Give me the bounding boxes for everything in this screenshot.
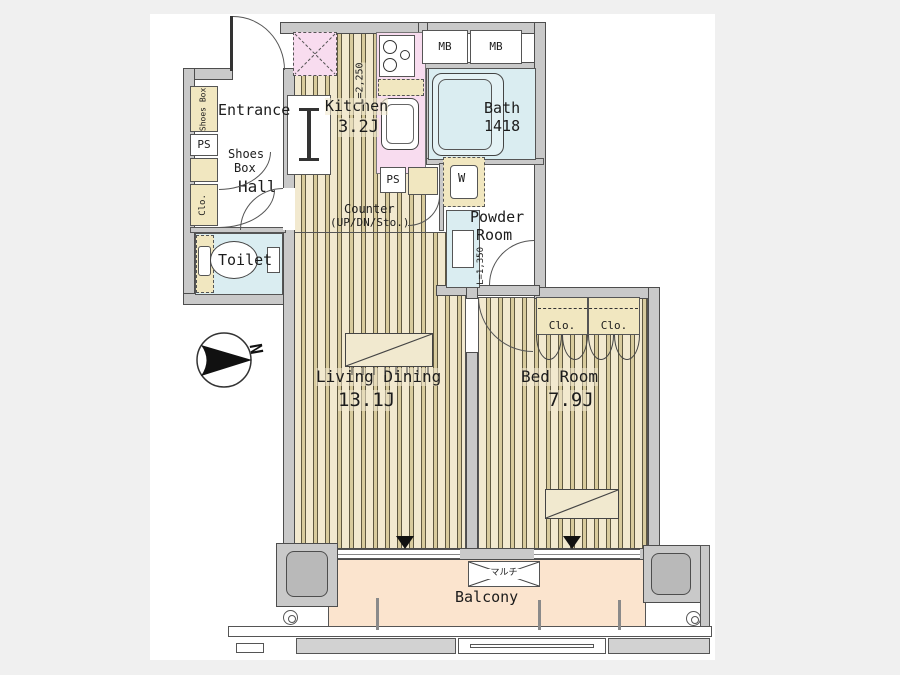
- bath-size: 1418: [484, 118, 520, 135]
- stove-burner-3: [400, 50, 410, 60]
- balcony-label: Balcony: [455, 589, 518, 606]
- powder-room-label-line1: Powder: [470, 209, 524, 226]
- bedroom-window: [534, 549, 640, 559]
- entrance-label: Entrance: [218, 102, 290, 119]
- balcony-railing-slat: [470, 644, 594, 648]
- bath-label: Bath: [484, 100, 520, 117]
- pipe-space-counter: PS: [380, 167, 406, 193]
- meter-box-1: MB: [422, 30, 468, 64]
- hall-door-opening: [283, 188, 295, 230]
- hall-closet: Clo.: [190, 184, 218, 226]
- pipe-space-entrance-label: PS: [197, 139, 210, 151]
- balcony-right-wall: [700, 545, 710, 627]
- shoes-box-tall-label: Shoes Box: [200, 87, 209, 130]
- closet-dashed-line: [538, 308, 638, 309]
- living-window-marker: [396, 536, 414, 549]
- meter-box-2: MB: [470, 30, 522, 64]
- refrigerator-space: [293, 32, 337, 76]
- kitchen-counter-length: L=2,250: [352, 42, 368, 124]
- balcony-railing-band: [228, 626, 712, 637]
- bed-room-size: 7.9J: [548, 390, 594, 411]
- balcony-railing-slat-panel-left: [236, 643, 264, 653]
- wall-bedroom-right: [648, 287, 660, 560]
- counter-note-line1: Counter: [344, 203, 395, 216]
- shoes-box-small: [190, 158, 218, 182]
- washing-machine-label: W: [458, 172, 465, 185]
- wall-ld-bedroom-divider: [466, 352, 478, 558]
- bedroom-door-opening: [466, 299, 478, 352]
- balcony-railing-block-right: [608, 638, 710, 654]
- balcony-drain-right: [686, 611, 701, 626]
- bedroom-closet-2-label: Clo.: [601, 320, 628, 332]
- counter-storage: [408, 167, 438, 195]
- hall-closet-label: Clo.: [199, 194, 209, 216]
- kitchen-sink-basin: [386, 104, 414, 144]
- powder-vanity-length: L=1,350: [474, 240, 490, 292]
- meter-box-1-label: MB: [438, 41, 451, 53]
- balcony-railing-block-left: [296, 638, 456, 654]
- balcony-post-2: [538, 600, 541, 630]
- stove-burner-2: [383, 58, 397, 72]
- living-dining-size: 13.1J: [338, 390, 395, 411]
- column-ibeam-stem: [307, 108, 311, 161]
- meter-box-2-label: MB: [489, 41, 502, 53]
- stove-burner-1: [383, 40, 397, 54]
- column-ibeam-bottom: [299, 158, 319, 161]
- toilet-label: Toilet: [218, 252, 272, 269]
- balcony-drain-left: [283, 610, 298, 625]
- bedroom-closet-1-label: Clo.: [549, 320, 576, 332]
- shoes-box-tall: Shoes Box: [190, 86, 218, 132]
- counter-note-line2: (UP/DN/Sto.): [330, 217, 409, 229]
- balcony-post-3: [618, 600, 621, 630]
- bedroom-closet-2: Clo.: [588, 297, 640, 335]
- floorplan-page: { "rooms": { "entrance": { "label": "Ent…: [0, 0, 900, 675]
- bedroom-closet-1: Clo.: [536, 297, 588, 335]
- bed-room-label: Bed Room: [521, 368, 598, 386]
- bedroom-window-marker: [563, 536, 581, 549]
- living-table: [345, 333, 433, 367]
- bedroom-desk: [545, 489, 619, 519]
- floorplan-canvas: マルチ MB MB W PS Counter (UP/DN/Sto.) Powd…: [0, 0, 900, 675]
- powder-vanity-sink: [452, 230, 474, 268]
- pipe-space-entrance: PS: [190, 134, 218, 156]
- balcony-right-pillar: [651, 553, 691, 595]
- kitchen-prep-area: [378, 79, 424, 96]
- balcony-multi-label: マルチ: [488, 569, 519, 579]
- balcony-multi-box: マルチ: [468, 561, 540, 587]
- balcony-post-1: [376, 598, 379, 630]
- balcony-left-pillar: [286, 551, 328, 597]
- pipe-space-counter-label: PS: [386, 174, 399, 186]
- living-dining-label: Living Dining: [316, 368, 441, 386]
